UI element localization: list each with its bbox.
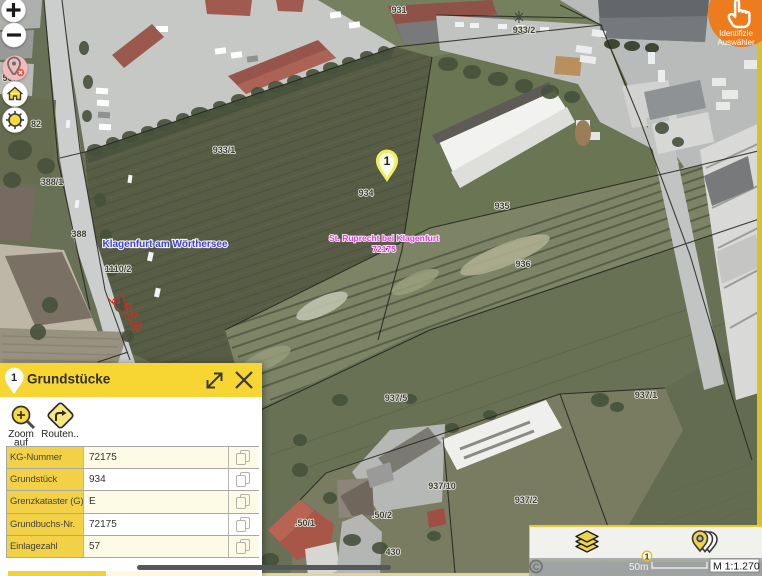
svg-text:C: C (533, 562, 540, 572)
svg-text:Grundstücke: Grundstücke (27, 372, 111, 387)
svg-text:Routen..: Routen.. (41, 429, 79, 440)
svg-text:50m: 50m (629, 562, 648, 573)
svg-text:M 1:1.270: M 1:1.270 (713, 561, 760, 573)
svg-text:1: 1 (645, 551, 650, 561)
svg-text:1: 1 (11, 372, 17, 384)
svg-text:Auswähler: Auswähler (717, 38, 755, 47)
svg-text:Identifizie: Identifizie (719, 29, 753, 38)
svg-text:1: 1 (384, 154, 391, 168)
